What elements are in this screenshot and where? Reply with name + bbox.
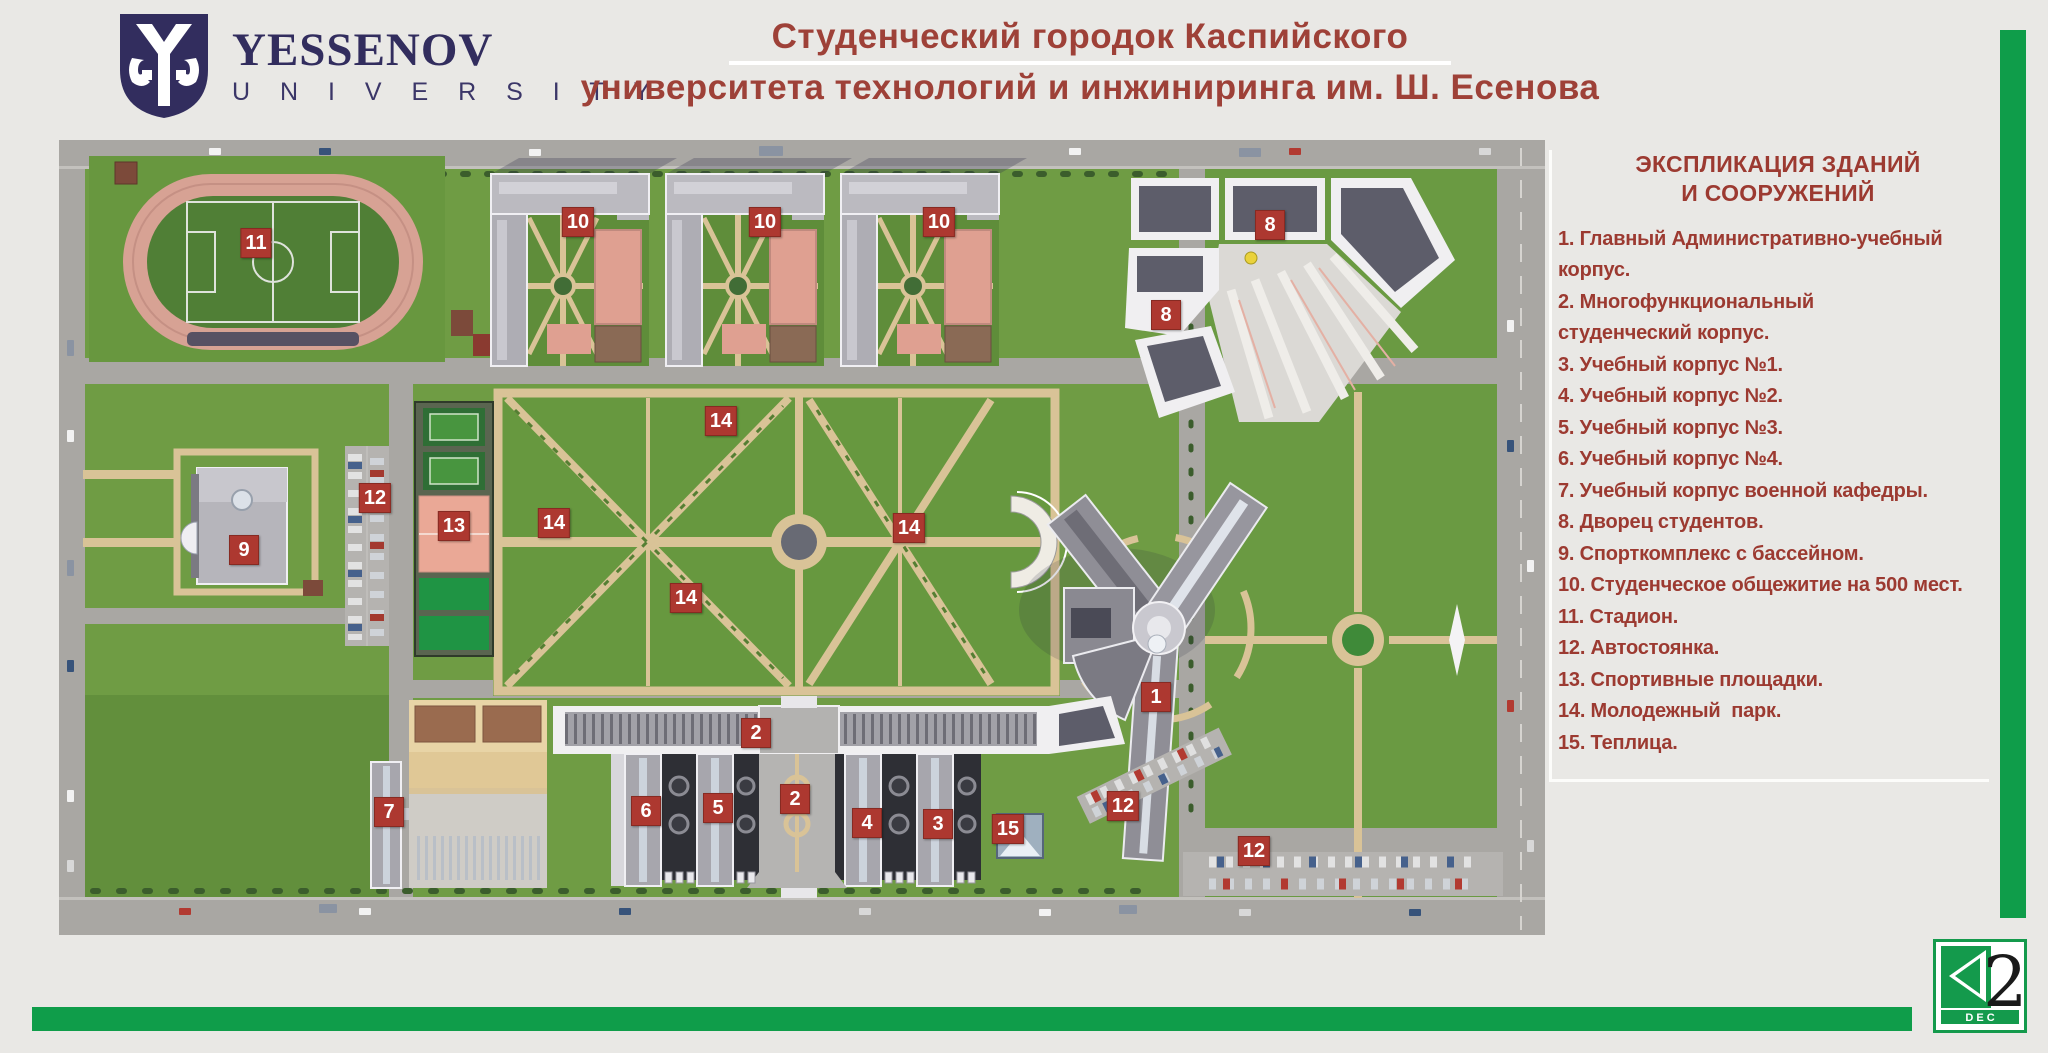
legend-item: 4. Учебный корпус №2.	[1558, 381, 1998, 413]
campus-map: 1110101088141414141213912265431571212	[59, 140, 1545, 935]
campus-poster: YESSENOV U N I V E R S I T Y Студенчески…	[0, 0, 2048, 1053]
map-marker-6: 6	[631, 796, 661, 826]
map-marker-4: 4	[852, 808, 882, 838]
legend-item: 8. Дворец студентов.	[1558, 507, 1998, 539]
right-green-bar	[2000, 30, 2026, 918]
map-marker-14: 14	[538, 508, 570, 538]
map-marker-10: 10	[923, 207, 955, 237]
map-marker-14: 14	[670, 583, 702, 613]
map-marker-8: 8	[1255, 210, 1285, 240]
map-marker-14: 14	[893, 513, 925, 543]
map-marker-12: 12	[359, 483, 391, 513]
map-marker-3: 3	[923, 809, 953, 839]
legend-item: 2. Многофункциональный студенческий корп…	[1558, 287, 1998, 350]
map-marker-15: 15	[992, 814, 1024, 844]
legend-divider-bottom	[1549, 779, 1989, 782]
legend-item: 1. Главный Административно-учебный корпу…	[1558, 224, 1998, 287]
legend-item: 12. Автостоянка.	[1558, 633, 1998, 665]
k2-dec-label: D E C	[1965, 1012, 1994, 1024]
legend-item: 15. Теплица.	[1558, 728, 1998, 760]
legend-item: 9. Спорткомплекс с бассейном.	[1558, 539, 1998, 571]
legend-title: ЭКСПЛИКАЦИЯ ЗДАНИЙ И СООРУЖЕНИЙ	[1558, 150, 1998, 208]
map-marker-1: 1	[1141, 682, 1171, 712]
legend-title-line1: ЭКСПЛИКАЦИЯ ЗДАНИЙ	[1558, 150, 1998, 179]
map-marker-10: 10	[562, 207, 594, 237]
map-marker-13: 13	[438, 511, 470, 541]
legend-item: 3. Учебный корпус №1.	[1558, 350, 1998, 382]
map-marker-12: 12	[1238, 836, 1270, 866]
legend-items: 1. Главный Административно-учебный корпу…	[1558, 224, 1998, 760]
map-marker-2: 2	[780, 784, 810, 814]
buildings-legend: ЭКСПЛИКАЦИЯ ЗДАНИЙ И СООРУЖЕНИЙ 1. Главн…	[1558, 150, 1998, 759]
legend-item: 10. Студенческое общежитие на 500 мест.	[1558, 570, 1998, 602]
legend-item: 7. Учебный корпус военной кафедры.	[1558, 476, 1998, 508]
k2dec-logo: 2 D E C	[1933, 939, 2027, 1033]
map-marker-2: 2	[741, 718, 771, 748]
map-markers-layer: 1110101088141414141213912265431571212	[59, 140, 1545, 935]
legend-item: 14. Молодежный парк.	[1558, 696, 1998, 728]
legend-item: 5. Учебный корпус №3.	[1558, 413, 1998, 445]
bottom-green-bar	[32, 1007, 1912, 1031]
map-marker-7: 7	[374, 797, 404, 827]
page-title: Студенческий городок Каспийского универс…	[540, 16, 1640, 109]
map-marker-14: 14	[705, 406, 737, 436]
legend-divider-left	[1549, 150, 1552, 780]
yessenov-emblem-icon	[112, 12, 216, 120]
legend-title-line2: И СООРУЖЕНИЙ	[1558, 179, 1998, 208]
legend-item: 6. Учебный корпус №4.	[1558, 444, 1998, 476]
map-marker-11: 11	[240, 228, 271, 258]
page-title-line2: университета технологий и инжиниринга им…	[540, 67, 1640, 110]
map-marker-9: 9	[229, 535, 259, 565]
title-divider	[729, 61, 1451, 65]
map-marker-5: 5	[703, 793, 733, 823]
map-marker-12: 12	[1107, 791, 1139, 821]
map-marker-10: 10	[749, 207, 781, 237]
map-marker-8: 8	[1151, 300, 1181, 330]
page-title-line1: Студенческий городок Каспийского	[540, 16, 1640, 59]
legend-item: 13. Спортивные площадки.	[1558, 665, 1998, 697]
legend-item: 11. Стадион.	[1558, 602, 1998, 634]
